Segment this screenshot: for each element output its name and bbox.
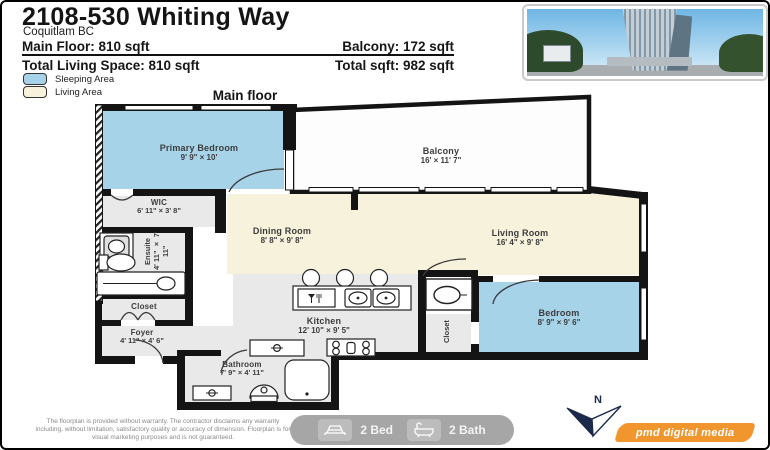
total-sqft: Total sqft: 982 sqft xyxy=(335,58,454,73)
room-name: Bedroom xyxy=(489,308,629,318)
floorplan-svg xyxy=(87,92,667,422)
disclaimer-text: The floorplan is provided without warran… xyxy=(32,418,294,442)
room-name: Kitchen xyxy=(264,316,384,326)
room-label-primary-bedroom: Primary Bedroom 9' 9" × 10' xyxy=(119,143,279,163)
building-photo-sky xyxy=(527,9,763,76)
room-label-foyer: Foyer 4' 11" × 4' 6" xyxy=(97,328,187,346)
room-dims: 16' × 11' 7" xyxy=(371,156,511,165)
room-label-ensuite: Ensuite 4' 11" × 7' 11" xyxy=(143,228,170,274)
floorplan-sheet: 2108-530 Whiting Way Coquitlam BC Main F… xyxy=(0,0,770,450)
room-dims: 4' 11" × 7' 11" xyxy=(152,228,170,274)
main-floor-sqft: Main Floor: 810 sqft xyxy=(22,39,150,54)
room-dims: 12' 10" × 9' 5" xyxy=(264,326,384,335)
bath-badge-label: 2 Bath xyxy=(449,423,486,437)
floorplan: Primary Bedroom 9' 9" × 10' Balcony 16' … xyxy=(87,92,667,422)
laundry-fixture xyxy=(426,279,472,310)
page-subtitle: Coquitlam BC xyxy=(23,26,94,38)
room-dims: 9' 9" × 10' xyxy=(119,153,279,162)
room-label-bedroom: Bedroom 8' 9" × 9' 6" xyxy=(489,308,629,328)
room-dims: 6' 11" × 3' 8" xyxy=(105,207,213,216)
total-living-sqft: Total Living Space: 810 sqft xyxy=(22,58,200,73)
brand-logo: pmd digital media xyxy=(614,423,755,442)
room-dims: 8' 8" × 9' 8" xyxy=(222,236,342,245)
room-dims: 8' 9" × 9' 6" xyxy=(489,318,629,327)
bed-icon xyxy=(318,419,352,441)
room-name: Ensuite xyxy=(143,228,152,274)
bath-icon xyxy=(407,419,441,441)
room-dims: 4' 11" × 4' 6" xyxy=(97,337,187,346)
room-name: Living Room xyxy=(460,228,580,238)
bath-badge: 2 Bath xyxy=(407,419,486,441)
room-balcony-area xyxy=(292,97,589,192)
room-label-bathroom: Bathroom 7' 9" × 4' 11" xyxy=(187,360,297,378)
header-divider xyxy=(22,54,454,56)
room-name: Closet xyxy=(442,314,451,350)
room-name: Balcony xyxy=(371,146,511,156)
brand-name: pmd digital media xyxy=(636,427,735,439)
room-dims: 7' 9" × 4' 11" xyxy=(187,369,297,378)
room-name: Primary Bedroom xyxy=(119,143,279,153)
room-label-closet-bedroom: Closet xyxy=(442,314,451,350)
living-area-swatch xyxy=(23,86,47,98)
building-photo xyxy=(522,4,768,81)
room-label-balcony: Balcony 16' × 11' 7" xyxy=(371,146,511,166)
room-name: Dining Room xyxy=(222,226,342,236)
photo-tree-right xyxy=(719,34,763,72)
photo-podium xyxy=(607,57,692,66)
photo-sign xyxy=(543,45,571,62)
room-label-kitchen: Kitchen 12' 10" × 9' 5" xyxy=(264,316,384,336)
sleeping-area-swatch xyxy=(23,73,47,85)
sqft-row-1: Main Floor: 810 sqft Balcony: 172 sqft xyxy=(22,39,454,54)
sleeping-area-label: Sleeping Area xyxy=(55,74,114,85)
sqft-row-2: Total Living Space: 810 sqft Total sqft:… xyxy=(22,58,454,73)
bed-badge: 2 Bed xyxy=(318,419,393,441)
legend-sleeping: Sleeping Area xyxy=(23,73,114,85)
room-name: Closet xyxy=(104,302,184,311)
bed-badge-label: 2 Bed xyxy=(360,423,393,437)
balcony-sqft: Balcony: 172 sqft xyxy=(342,39,454,54)
room-label-wic: WIC 6' 11" × 3' 8" xyxy=(105,198,213,216)
room-label-closet-entry: Closet xyxy=(104,302,184,311)
bed-bath-badge-bar: 2 Bed 2 Bath xyxy=(290,415,514,445)
room-dims: 16' 4" × 9' 8" xyxy=(460,238,580,247)
room-label-dining-room: Dining Room 8' 8" × 9' 8" xyxy=(222,226,342,246)
room-label-living-room: Living Room 16' 4" × 9' 8" xyxy=(460,228,580,248)
